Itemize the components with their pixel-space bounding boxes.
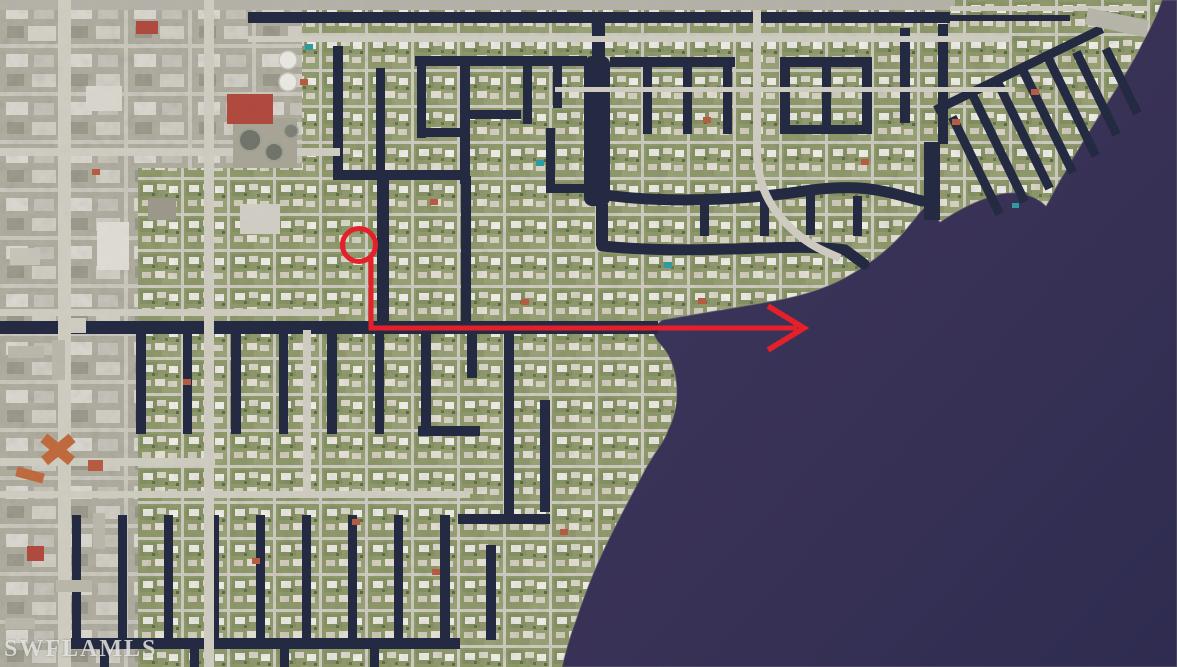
image-grain	[0, 0, 1177, 667]
mls-watermark: SWFLAMLS	[4, 636, 157, 663]
listing-photo: SWFLAMLS	[0, 0, 1177, 667]
satellite-map	[0, 0, 1177, 667]
